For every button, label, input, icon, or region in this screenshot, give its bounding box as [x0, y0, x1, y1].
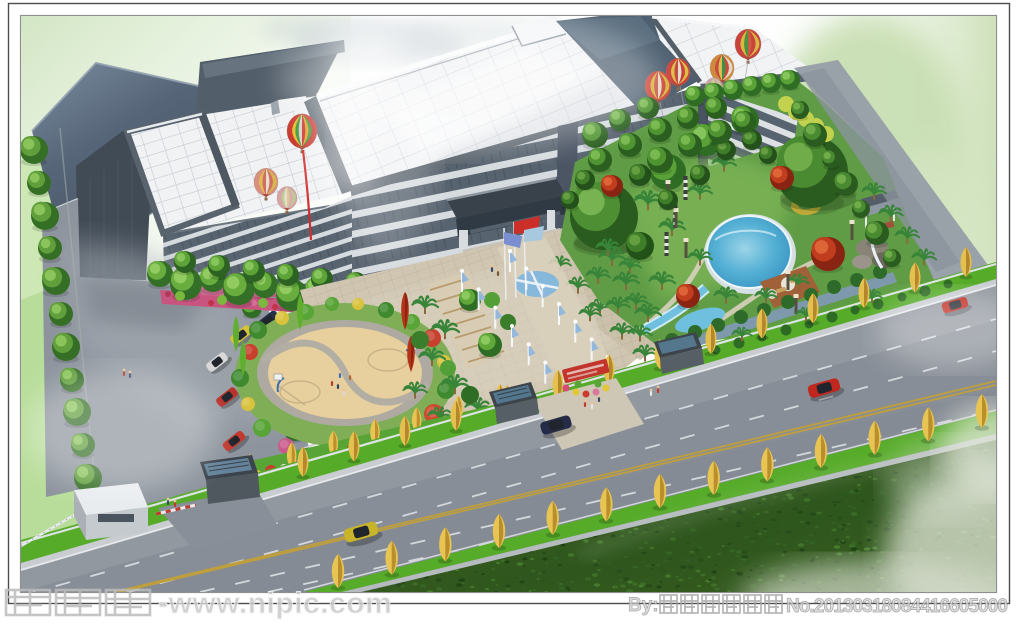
svg-text:No.20130318084416605000: No.20130318084416605000	[786, 596, 1008, 617]
svg-text:By:: By:	[628, 595, 659, 616]
svg-text:-www.nipic.com: -www.nipic.com	[158, 587, 392, 620]
